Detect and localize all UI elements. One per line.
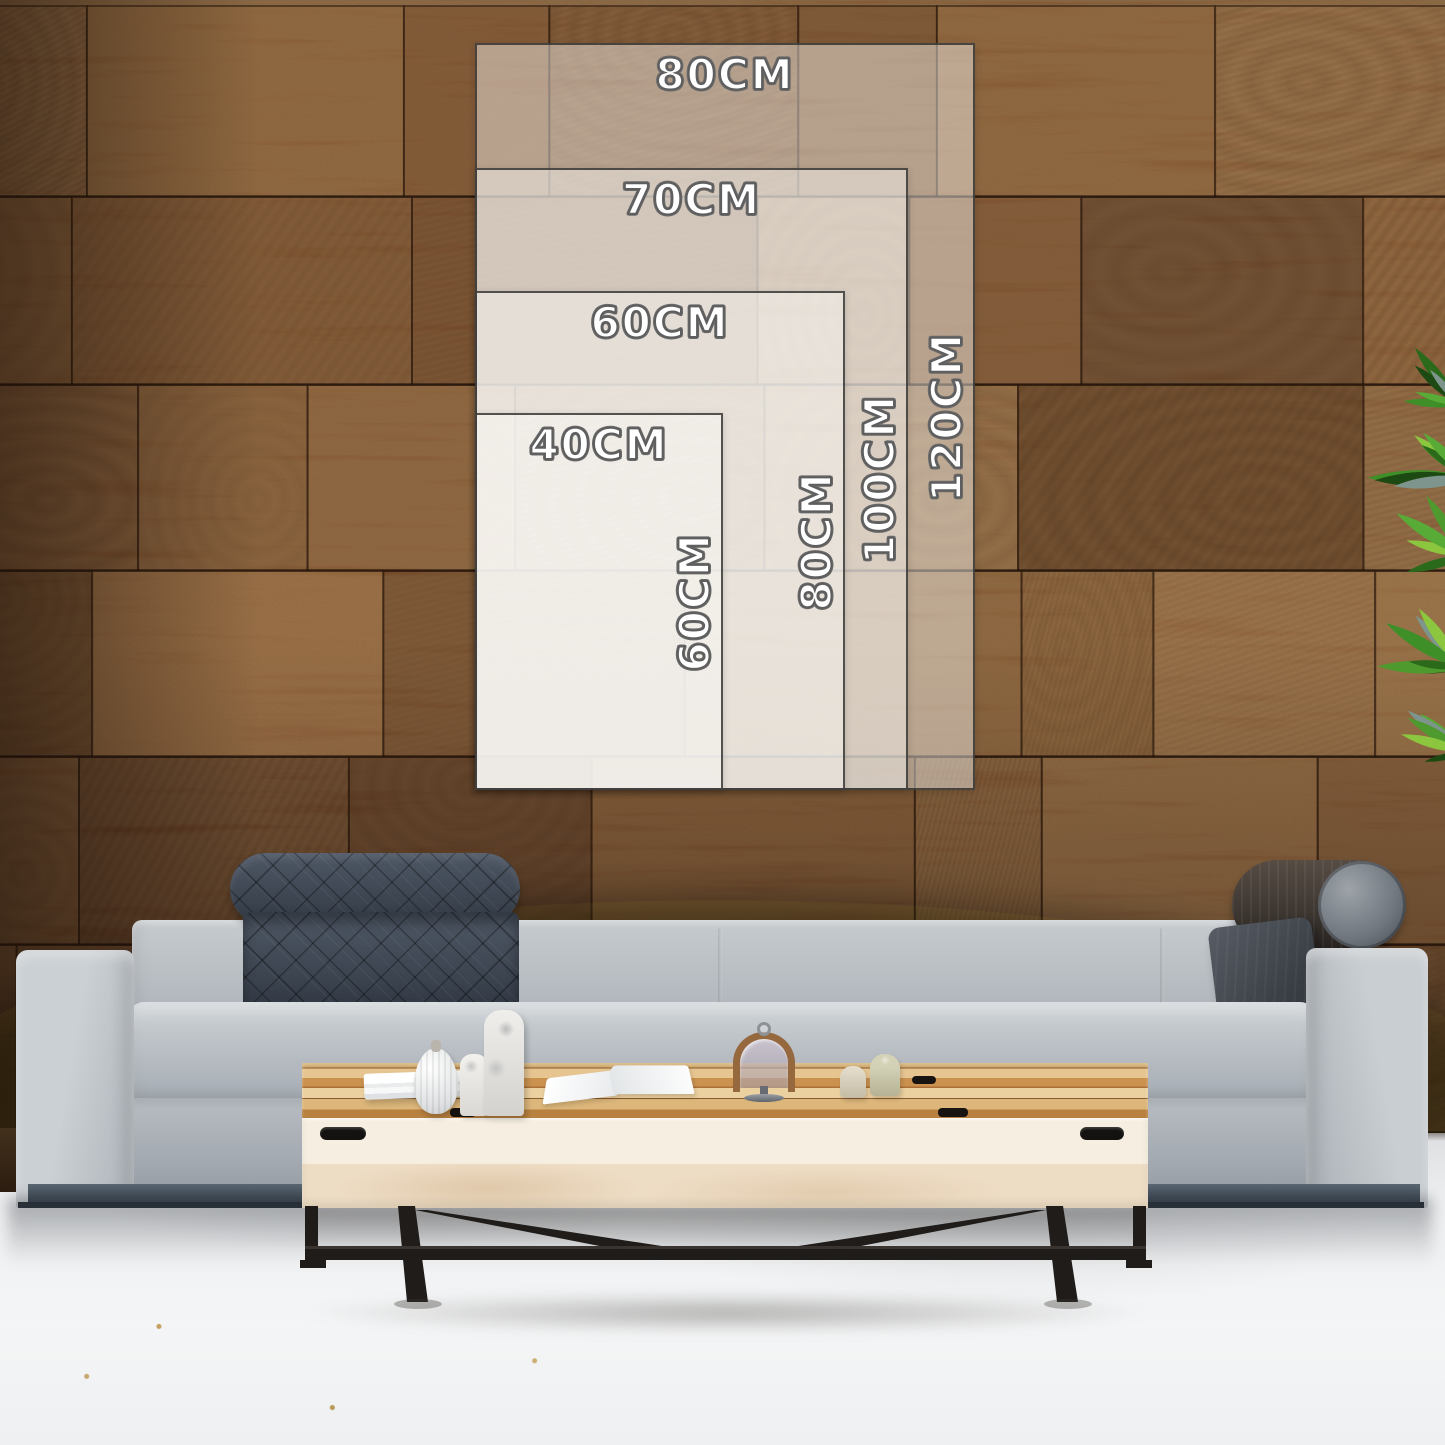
quilted-headrest-panel (243, 912, 519, 1010)
table-slot (912, 1076, 936, 1084)
height-label-100cm: 100CM (859, 394, 901, 564)
table-under-shadow (312, 1208, 1138, 1252)
product-size-guide-mockup: 80CM 120CM 70CM 100CM 60CM 80CM 40CM 60C… (0, 0, 1445, 1445)
book-page-left (543, 1069, 622, 1104)
table-shadow (292, 1292, 1162, 1334)
table-slot (938, 1108, 968, 1117)
ceramic-jar-tall (870, 1054, 900, 1096)
size-option-60x80: 60CM 80CM 40CM 60CM (475, 291, 845, 790)
ceramic-jar-small (840, 1066, 866, 1098)
width-label-40cm: 40CM (477, 424, 721, 466)
size-option-40x60: 40CM 60CM (475, 413, 723, 790)
drawer-handle (320, 1127, 366, 1140)
width-label-70cm: 70CM (477, 179, 906, 221)
width-label-60cm: 60CM (477, 302, 843, 344)
cloche-wood-handle (733, 1032, 795, 1092)
height-label-60cm: 60CM (674, 532, 716, 671)
height-label-120cm: 120CM (926, 331, 968, 501)
width-label-80cm: 80CM (477, 54, 973, 96)
marble-vase-tall (484, 1010, 524, 1116)
sofa-left-armrest (16, 950, 134, 1208)
height-label-80cm: 80CM (796, 471, 838, 610)
size-option-80x120: 80CM 120CM 70CM 100CM 60CM 80CM 40CM 60C… (475, 43, 975, 790)
cloche-base (744, 1094, 784, 1102)
drawer-handle (1080, 1127, 1124, 1140)
size-option-70x100: 70CM 100CM 60CM 80CM 40CM 60CM (475, 168, 908, 790)
open-book (544, 1060, 692, 1106)
cloche-knob (757, 1022, 771, 1036)
glass-cloche (733, 1026, 795, 1102)
book-page-right (609, 1065, 695, 1094)
sofa-right-armrest (1306, 948, 1428, 1208)
table-front-panel (302, 1118, 1148, 1208)
